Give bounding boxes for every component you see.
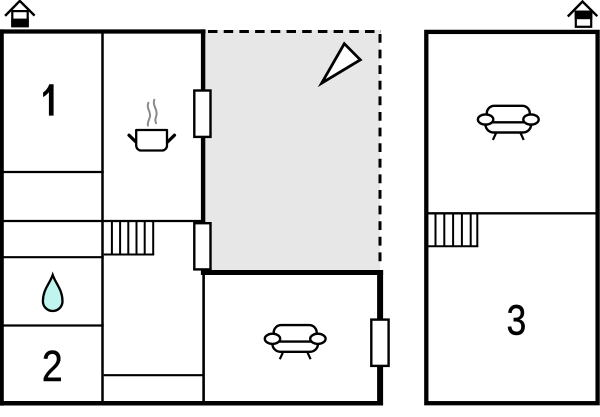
svg-text:2: 2 (42, 341, 63, 391)
svg-text:3: 3 (507, 296, 527, 344)
